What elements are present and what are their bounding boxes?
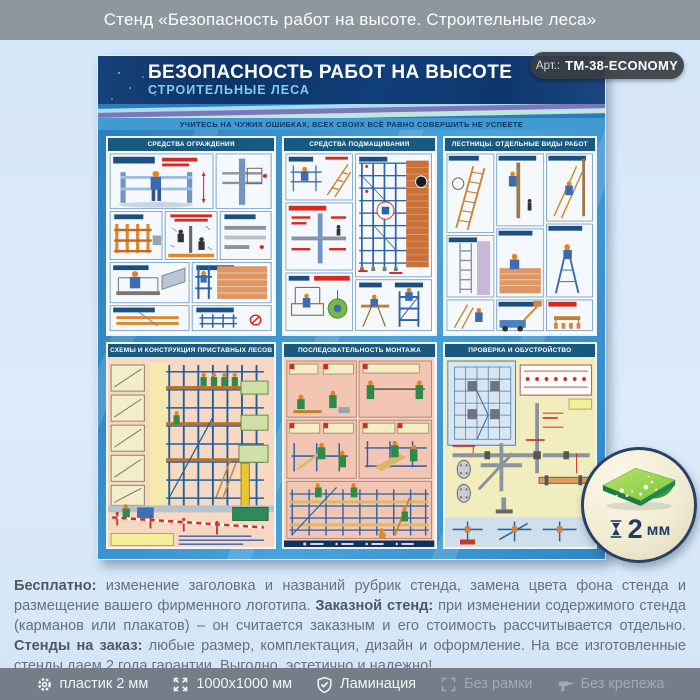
panel-scaffolding-means: СРЕДСТВА ПОДМАЩИВАНИЯ <box>282 136 436 336</box>
attr-no-frame-label: Без рамки <box>464 676 532 692</box>
panel-artwork-scaffolding-means <box>284 151 434 334</box>
bottom-attribute-bar: пластик 2 мм 1000x1000 мм Ламинация Без … <box>0 668 700 700</box>
article-code: ТМ-38-ECONOMY <box>565 58 678 73</box>
attr-material: пластик 2 мм <box>36 676 149 693</box>
poster-subtitle: СТРОИТЕЛЬНЫЕ ЛЕСА <box>148 83 605 98</box>
attr-lamination-label: Ламинация <box>340 676 416 692</box>
poster-header: БЕЗОПАСНОСТЬ РАБОТ НА ВЫСОТЕ СТРОИТЕЛЬНЫ… <box>98 56 605 104</box>
drill-icon <box>557 676 574 693</box>
frame-icon <box>440 676 457 693</box>
thickness-value: 2 <box>628 517 643 541</box>
plastic-sheet-icon <box>596 460 682 521</box>
poster-motto-band: УЧИТЕСЬ НА ЧУЖИХ ОШИБКАХ, ВСЕХ СВОИХ ВСЁ… <box>98 118 605 130</box>
poster-body: СРЕДСТВА ОГРАЖДЕНИЯ <box>98 130 605 559</box>
attr-material-label: пластик 2 мм <box>60 676 149 692</box>
attr-no-frame: Без рамки <box>440 676 532 693</box>
panel-scaffold-schemes: СХЕМЫ И КОНСТРУКЦИЯ ПРИСТАВНЫХ ЛЕСОВ <box>106 342 276 550</box>
panel-artwork-schemes <box>108 357 274 548</box>
poster-motto: УЧИТЕСЬ НА ЧУЖИХ ОШИБКАХ, ВСЕХ СВОИХ ВСЁ… <box>180 120 523 129</box>
attr-lamination: Ламинация <box>316 676 416 693</box>
panel-artwork-assembly <box>284 357 434 548</box>
panel-assembly-sequence: ПОСЛЕДОВАТЕЛЬНОСТЬ МОНТАЖА <box>282 342 436 550</box>
page-title: Стенд «Безопасность работ на высоте. Стр… <box>104 10 597 30</box>
panel-title: ПРОВЕРКА И ОБУСТРОЙСТВО <box>445 344 595 357</box>
panel-fencing: СРЕДСТВА ОГРАЖДЕНИЯ <box>106 136 276 336</box>
header-decor-dots <box>118 72 120 74</box>
article-badge: Арт.: ТМ-38-ECONOMY <box>530 52 684 79</box>
panel-artwork-fencing <box>108 151 274 334</box>
shield-check-icon <box>316 676 333 693</box>
top-title-bar: Стенд «Безопасность работ на высоте. Стр… <box>0 0 700 40</box>
attr-size-label: 1000x1000 мм <box>196 676 292 692</box>
panel-title: СХЕМЫ И КОНСТРУКЦИЯ ПРИСТАВНЫХ ЛЕСОВ <box>108 344 274 357</box>
attr-size: 1000x1000 мм <box>172 676 292 693</box>
poster-ribbons <box>98 104 605 118</box>
article-prefix: Арт.: <box>536 60 560 72</box>
panel-artwork-inspection <box>445 357 595 548</box>
panel-artwork-ladders <box>445 151 595 334</box>
panel-inspection-setup: ПРОВЕРКА И ОБУСТРОЙСТВО <box>443 342 597 550</box>
attr-no-mounting: Без крепежа <box>557 676 665 693</box>
stand-poster: БЕЗОПАСНОСТЬ РАБОТ НА ВЫСОТЕ СТРОИТЕЛЬНЫ… <box>97 55 606 560</box>
panel-title: ЛЕСТНИЦЫ. ОТДЕЛЬНЫЕ ВИДЫ РАБОТ <box>445 138 595 151</box>
description-text: Бесплатно: изменение заголовка и названи… <box>14 577 686 677</box>
panel-ladders-works: ЛЕСТНИЦЫ. ОТДЕЛЬНЫЕ ВИДЫ РАБОТ <box>443 136 597 336</box>
thickness-unit: мм <box>647 521 671 541</box>
thickness-measure-icon <box>608 517 624 541</box>
panel-title: СРЕДСТВА ОГРАЖДЕНИЯ <box>108 138 274 151</box>
thickness-badge: 2мм <box>581 447 697 563</box>
panel-title: СРЕДСТВА ПОДМАЩИВАНИЯ <box>284 138 434 151</box>
attr-no-mounting-label: Без крепежа <box>581 676 665 692</box>
gear-icon <box>36 676 53 693</box>
expand-icon <box>172 676 189 693</box>
product-card: Стенд «Безопасность работ на высоте. Стр… <box>0 0 700 700</box>
panel-title: ПОСЛЕДОВАТЕЛЬНОСТЬ МОНТАЖА <box>284 344 434 357</box>
